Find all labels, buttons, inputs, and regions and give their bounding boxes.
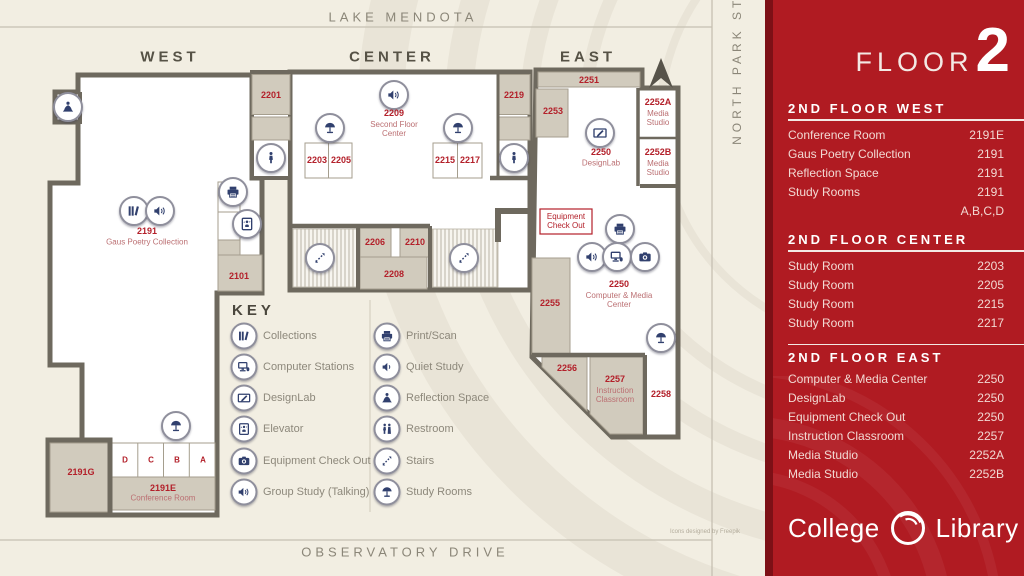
room-label: 2215 bbox=[435, 155, 455, 165]
equipment-checkout-icon bbox=[231, 448, 258, 475]
room-sublabel: Computer & Media Center bbox=[580, 291, 658, 309]
room-label: 2206 bbox=[365, 237, 385, 247]
elevator-icon bbox=[232, 209, 262, 239]
room-label: 2255 bbox=[540, 298, 560, 308]
computer-stations-icon bbox=[231, 354, 258, 381]
street-label-right: NORTH PARK STREET bbox=[730, 0, 744, 145]
street-label-bottom: OBSERVATORY DRIVE bbox=[301, 545, 508, 560]
print-scan-icon bbox=[218, 177, 248, 207]
room-label: 2258 bbox=[651, 389, 671, 399]
room-label: 2253 bbox=[543, 106, 563, 116]
key-item-label: Collections bbox=[263, 330, 317, 342]
room-row: Media Studio2252A bbox=[788, 446, 1024, 465]
equipment-checkout-label: Equipment Check Out bbox=[542, 212, 590, 230]
room-label: 2205 bbox=[331, 155, 351, 165]
reflection-space-icon bbox=[374, 385, 401, 412]
room-label: 2191E bbox=[150, 483, 176, 493]
restroom-icon bbox=[256, 143, 286, 173]
room-row: A,B,C,D bbox=[788, 202, 1024, 221]
panel-section-title: 2ND FLOOR WEST bbox=[788, 101, 1024, 121]
designlab-icon bbox=[585, 118, 615, 148]
icon-credit: Icons designed by Freepik bbox=[580, 529, 740, 535]
computer-stations-icon bbox=[602, 242, 632, 272]
panel-accent-strip bbox=[765, 0, 773, 576]
floor-number: 2 bbox=[976, 24, 1010, 78]
wing-title-west: WEST bbox=[140, 49, 199, 66]
key-item-label: Elevator bbox=[263, 423, 303, 435]
college-library-logo: College Library bbox=[788, 508, 1019, 548]
wall-segment bbox=[495, 208, 501, 242]
panel-section-title: 2ND FLOOR EAST bbox=[788, 350, 1024, 368]
room-row: Conference Room2191E bbox=[788, 126, 1024, 145]
room-label: 2256 bbox=[557, 363, 577, 373]
stairs-icon bbox=[449, 243, 479, 273]
room-label: C bbox=[148, 456, 154, 465]
key-item-label: Restroom bbox=[406, 423, 454, 435]
panel-section-title: 2ND FLOOR CENTER bbox=[788, 232, 1024, 252]
study-rooms-icon bbox=[374, 479, 401, 506]
quiet-study-icon bbox=[374, 354, 401, 381]
key-divider bbox=[369, 300, 371, 512]
print-scan-icon bbox=[374, 323, 401, 350]
group-study-icon bbox=[231, 479, 258, 506]
room-label: 2250 bbox=[609, 279, 629, 289]
room-row: Equipment Check Out2250 bbox=[788, 408, 1024, 427]
panel-section-center: 2ND FLOOR CENTER Study Room2203 Study Ro… bbox=[788, 232, 1024, 333]
room-row: Study Room2215 bbox=[788, 295, 1024, 314]
room-label: 2191 bbox=[137, 226, 157, 236]
room-sublabel: Media Studio bbox=[641, 159, 675, 177]
room-label: 2208 bbox=[384, 269, 404, 279]
room-label: 2257 bbox=[605, 374, 625, 384]
street-label-top: LAKE MENDOTA bbox=[329, 10, 478, 25]
wing-title-east: EAST bbox=[560, 49, 616, 66]
restroom-icon bbox=[499, 143, 529, 173]
restroom-icon bbox=[374, 416, 401, 443]
room-sublabel: Second Floor Center bbox=[365, 120, 423, 138]
key-item-label: Quiet Study bbox=[406, 361, 463, 373]
room-label: 2217 bbox=[460, 155, 480, 165]
room-row: Study Room2217 bbox=[788, 314, 1024, 333]
room-row: Gaus Poetry Collection2191 bbox=[788, 145, 1024, 164]
library-swirl-icon bbox=[888, 508, 928, 548]
designlab-icon bbox=[231, 385, 258, 412]
key-item-label: Group Study (Talking) bbox=[263, 486, 369, 498]
floor-map-page: LAKE MENDOTA OBSERVATORY DRIVE NORTH PAR… bbox=[0, 0, 1024, 576]
room-2191g bbox=[50, 443, 108, 512]
room-row: Instruction Classroom2257 bbox=[788, 427, 1024, 446]
room-row: Computer & Media Center2250 bbox=[788, 370, 1024, 389]
study-rooms-icon bbox=[646, 323, 676, 353]
info-panel: FLOOR 2 2ND FLOOR WEST Conference Room21… bbox=[773, 0, 1024, 576]
room-row: Reflection Space2191 bbox=[788, 164, 1024, 183]
room-row: Study Rooms2191 bbox=[788, 183, 1024, 202]
print-scan-icon bbox=[605, 214, 635, 244]
study-rooms-icon bbox=[315, 113, 345, 143]
logo-text-left: College bbox=[788, 513, 880, 544]
key-item-label: Print/Scan bbox=[406, 330, 457, 342]
room-2219-annex bbox=[498, 117, 530, 140]
room-sublabel: Conference Room bbox=[118, 494, 208, 503]
room-row: Media Studio2252B bbox=[788, 465, 1024, 484]
room-annex-west bbox=[218, 240, 240, 255]
panel-section-west: 2ND FLOOR WEST Conference Room2191E Gaus… bbox=[788, 101, 1024, 221]
room-row: Study Room2203 bbox=[788, 257, 1024, 276]
key-item-label: Study Rooms bbox=[406, 486, 472, 498]
key-item-label: Equipment Check Out bbox=[263, 455, 371, 467]
logo-text-right: Library bbox=[936, 513, 1019, 544]
room-label: 2251 bbox=[579, 75, 599, 85]
stairs-icon bbox=[374, 448, 401, 475]
quiet-study-icon bbox=[145, 196, 175, 226]
panel-section-east: 2ND FLOOR EAST Computer & Media Center22… bbox=[788, 344, 1024, 484]
room-label: 2252A bbox=[645, 97, 672, 107]
key-item-label: Computer Stations bbox=[263, 361, 354, 373]
study-rooms-icon bbox=[161, 411, 191, 441]
study-rooms-icon bbox=[443, 113, 473, 143]
room-row: Study Room2205 bbox=[788, 276, 1024, 295]
room-sublabel: Gaus Poetry Collection bbox=[82, 238, 212, 247]
equipment-checkout-icon bbox=[630, 242, 660, 272]
wing-title-center: CENTER bbox=[349, 49, 435, 66]
room-label: 2219 bbox=[504, 90, 524, 100]
room-label: 2252B bbox=[645, 147, 672, 157]
floor-label: FLOOR bbox=[856, 47, 974, 78]
room-sublabel: DesignLab bbox=[566, 159, 636, 168]
floor-header: FLOOR 2 bbox=[856, 24, 1011, 78]
room-sublabel: Instruction Classroom bbox=[587, 386, 643, 404]
quiet-study-icon bbox=[379, 80, 409, 110]
reflection-space-icon bbox=[53, 92, 83, 122]
room-label: 2210 bbox=[405, 237, 425, 247]
room-label: 2250 bbox=[591, 147, 611, 157]
room-label: A bbox=[200, 456, 206, 465]
room-label: 2191G bbox=[67, 467, 94, 477]
key-item-label: Stairs bbox=[406, 455, 434, 467]
key-item-label: Reflection Space bbox=[406, 392, 489, 404]
elevator-icon bbox=[231, 416, 258, 443]
room-label: D bbox=[122, 456, 128, 465]
collections-icon bbox=[231, 323, 258, 350]
key-item-label: DesignLab bbox=[263, 392, 316, 404]
room-label: 2209 bbox=[384, 108, 404, 118]
room-label: 2101 bbox=[229, 271, 249, 281]
room-label: B bbox=[174, 456, 180, 465]
room-label: 2201 bbox=[261, 90, 281, 100]
key-title: KEY bbox=[232, 302, 275, 319]
stairs-icon bbox=[305, 243, 335, 273]
room-label: 2203 bbox=[307, 155, 327, 165]
room-row: DesignLab2250 bbox=[788, 389, 1024, 408]
room-sublabel: Media Studio bbox=[641, 109, 675, 127]
room-2201-annex bbox=[252, 117, 290, 140]
